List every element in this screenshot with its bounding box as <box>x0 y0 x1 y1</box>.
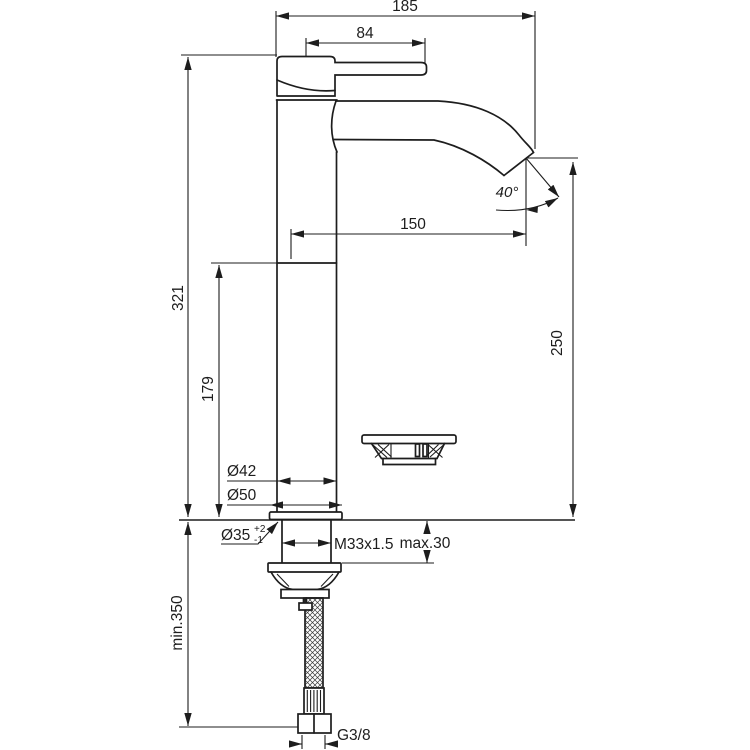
faucet-handle <box>277 57 427 97</box>
dim-label-dia-hole: Ø35 <box>221 527 250 544</box>
dim-label-hose-length-min: min.350 <box>169 595 186 651</box>
supply-hose <box>298 598 331 733</box>
dim-label-thread: M33x1.5 <box>334 536 393 553</box>
angle-arrowhead <box>527 206 539 213</box>
dim-label-dia-body: Ø42 <box>227 463 256 480</box>
spout-body-junction <box>332 101 337 152</box>
dimension-lines <box>188 16 573 744</box>
dimension-labels: 185 84 150 40° 250 321 179 min.350 Ø42 Ø… <box>169 0 566 744</box>
handle-skirt-line <box>277 80 335 91</box>
base-flange <box>270 512 343 520</box>
dim-label-overall-width: 185 <box>392 0 418 15</box>
mounting-shank <box>282 520 331 563</box>
hose-clip <box>299 603 312 610</box>
faucet <box>268 57 534 734</box>
dim-label-dia-hole-tol-plus: +2 <box>254 524 266 535</box>
dim-label-height-outlet: 250 <box>549 330 566 356</box>
dim-label-dia-base: Ø50 <box>227 487 257 504</box>
dim-label-height-total: 321 <box>170 285 187 311</box>
extension-lines <box>179 11 578 749</box>
faucet-dimension-drawing: 185 84 150 40° 250 321 179 min.350 Ø42 Ø… <box>0 0 750 750</box>
dim-label-handle-length: 84 <box>356 25 374 42</box>
dim-label-height-body: 179 <box>200 376 217 402</box>
dim-label-hose-connection: G3/8 <box>337 727 371 744</box>
dim-label-spout-angle: 40° <box>496 184 519 201</box>
dim-label-dia-hole-tol-minus: -1 <box>254 535 263 546</box>
fastening-set <box>268 563 341 598</box>
dim-label-spout-reach: 150 <box>400 216 426 233</box>
spout-outlet-face <box>504 153 534 176</box>
faucet-spout-top <box>336 101 534 153</box>
drain-plug <box>362 435 456 465</box>
faucet-spout-bottom <box>334 140 504 176</box>
technical-drawing-canvas: 185 84 150 40° 250 321 179 min.350 Ø42 Ø… <box>0 0 750 750</box>
dim-label-deck-thickness-max: max.30 <box>400 535 451 552</box>
